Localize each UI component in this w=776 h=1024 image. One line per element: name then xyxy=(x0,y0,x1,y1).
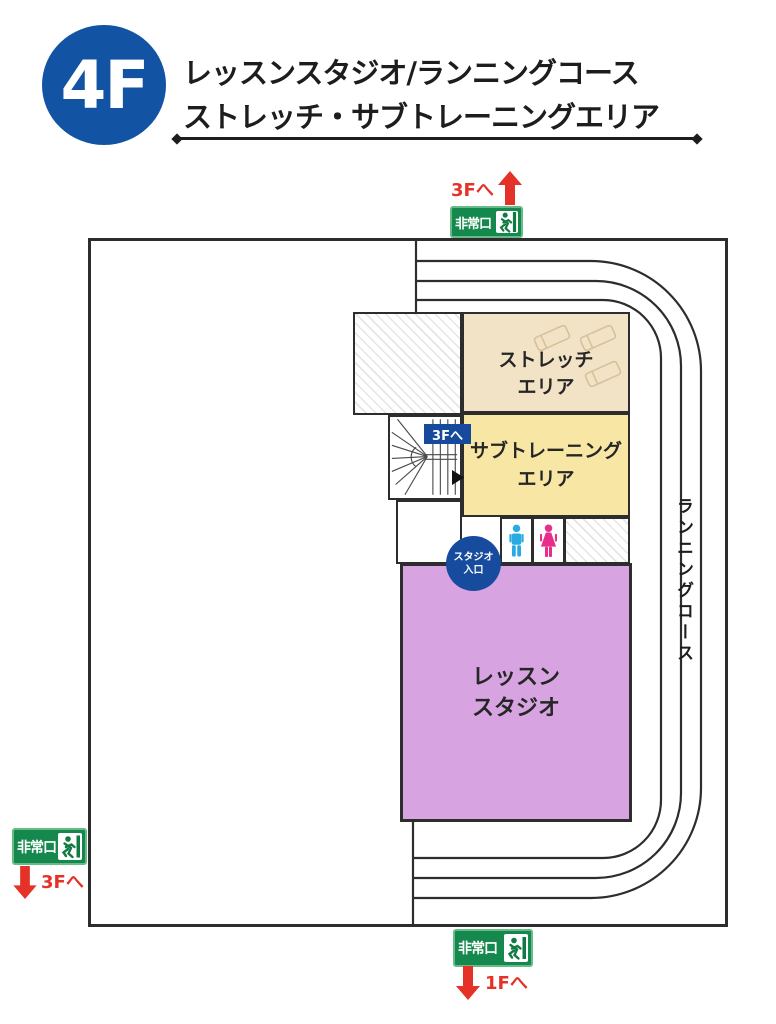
female-icon xyxy=(539,524,558,558)
emergency-exit-sign-top: 非常口 xyxy=(450,206,523,238)
exit-top-direction-label: 3Fへ xyxy=(451,176,494,202)
down-arrow-icon xyxy=(13,866,37,899)
stairs-direction-triangle-icon xyxy=(452,470,464,485)
emergency-exit-sign-bottom-left: 非常口 xyxy=(12,828,87,865)
floor-map-page: 4F レッスンスタジオ/ランニングコース ストレッチ・サブトレーニングエリア ラ… xyxy=(0,0,776,1024)
stretch-area: ストレッチ エリア xyxy=(462,312,630,413)
male-icon xyxy=(509,524,524,558)
running-course-label: ランニングコース xyxy=(671,497,696,665)
running-man-icon xyxy=(496,211,518,233)
up-arrow-icon xyxy=(498,171,522,205)
restroom-male xyxy=(500,517,533,564)
sub-training-area-label: サブトレーニング エリア xyxy=(464,415,628,515)
hatched-room-top xyxy=(353,312,462,415)
lesson-studio-label: レッスン スタジオ xyxy=(403,566,629,819)
running-track xyxy=(0,0,776,1024)
emergency-exit-sign-bottom-center: 非常口 xyxy=(453,929,533,967)
restroom-female xyxy=(532,517,565,564)
lesson-studio-area: レッスン スタジオ xyxy=(400,563,632,822)
exit-bottom-left-direction-label: 3Fへ xyxy=(41,868,84,894)
studio-entrance-badge: スタジオ 入口 xyxy=(446,536,501,591)
exit-bottom-center-direction-label: 1Fへ xyxy=(485,969,528,995)
hatched-room-side xyxy=(564,517,630,564)
running-man-icon xyxy=(504,934,528,962)
stairs-floor-badge: 3Fへ xyxy=(424,424,471,444)
running-man-icon xyxy=(58,833,82,860)
sub-training-area: サブトレーニング エリア xyxy=(462,413,630,517)
down-arrow-icon xyxy=(456,966,480,1000)
stretch-mat-icons xyxy=(464,314,632,415)
